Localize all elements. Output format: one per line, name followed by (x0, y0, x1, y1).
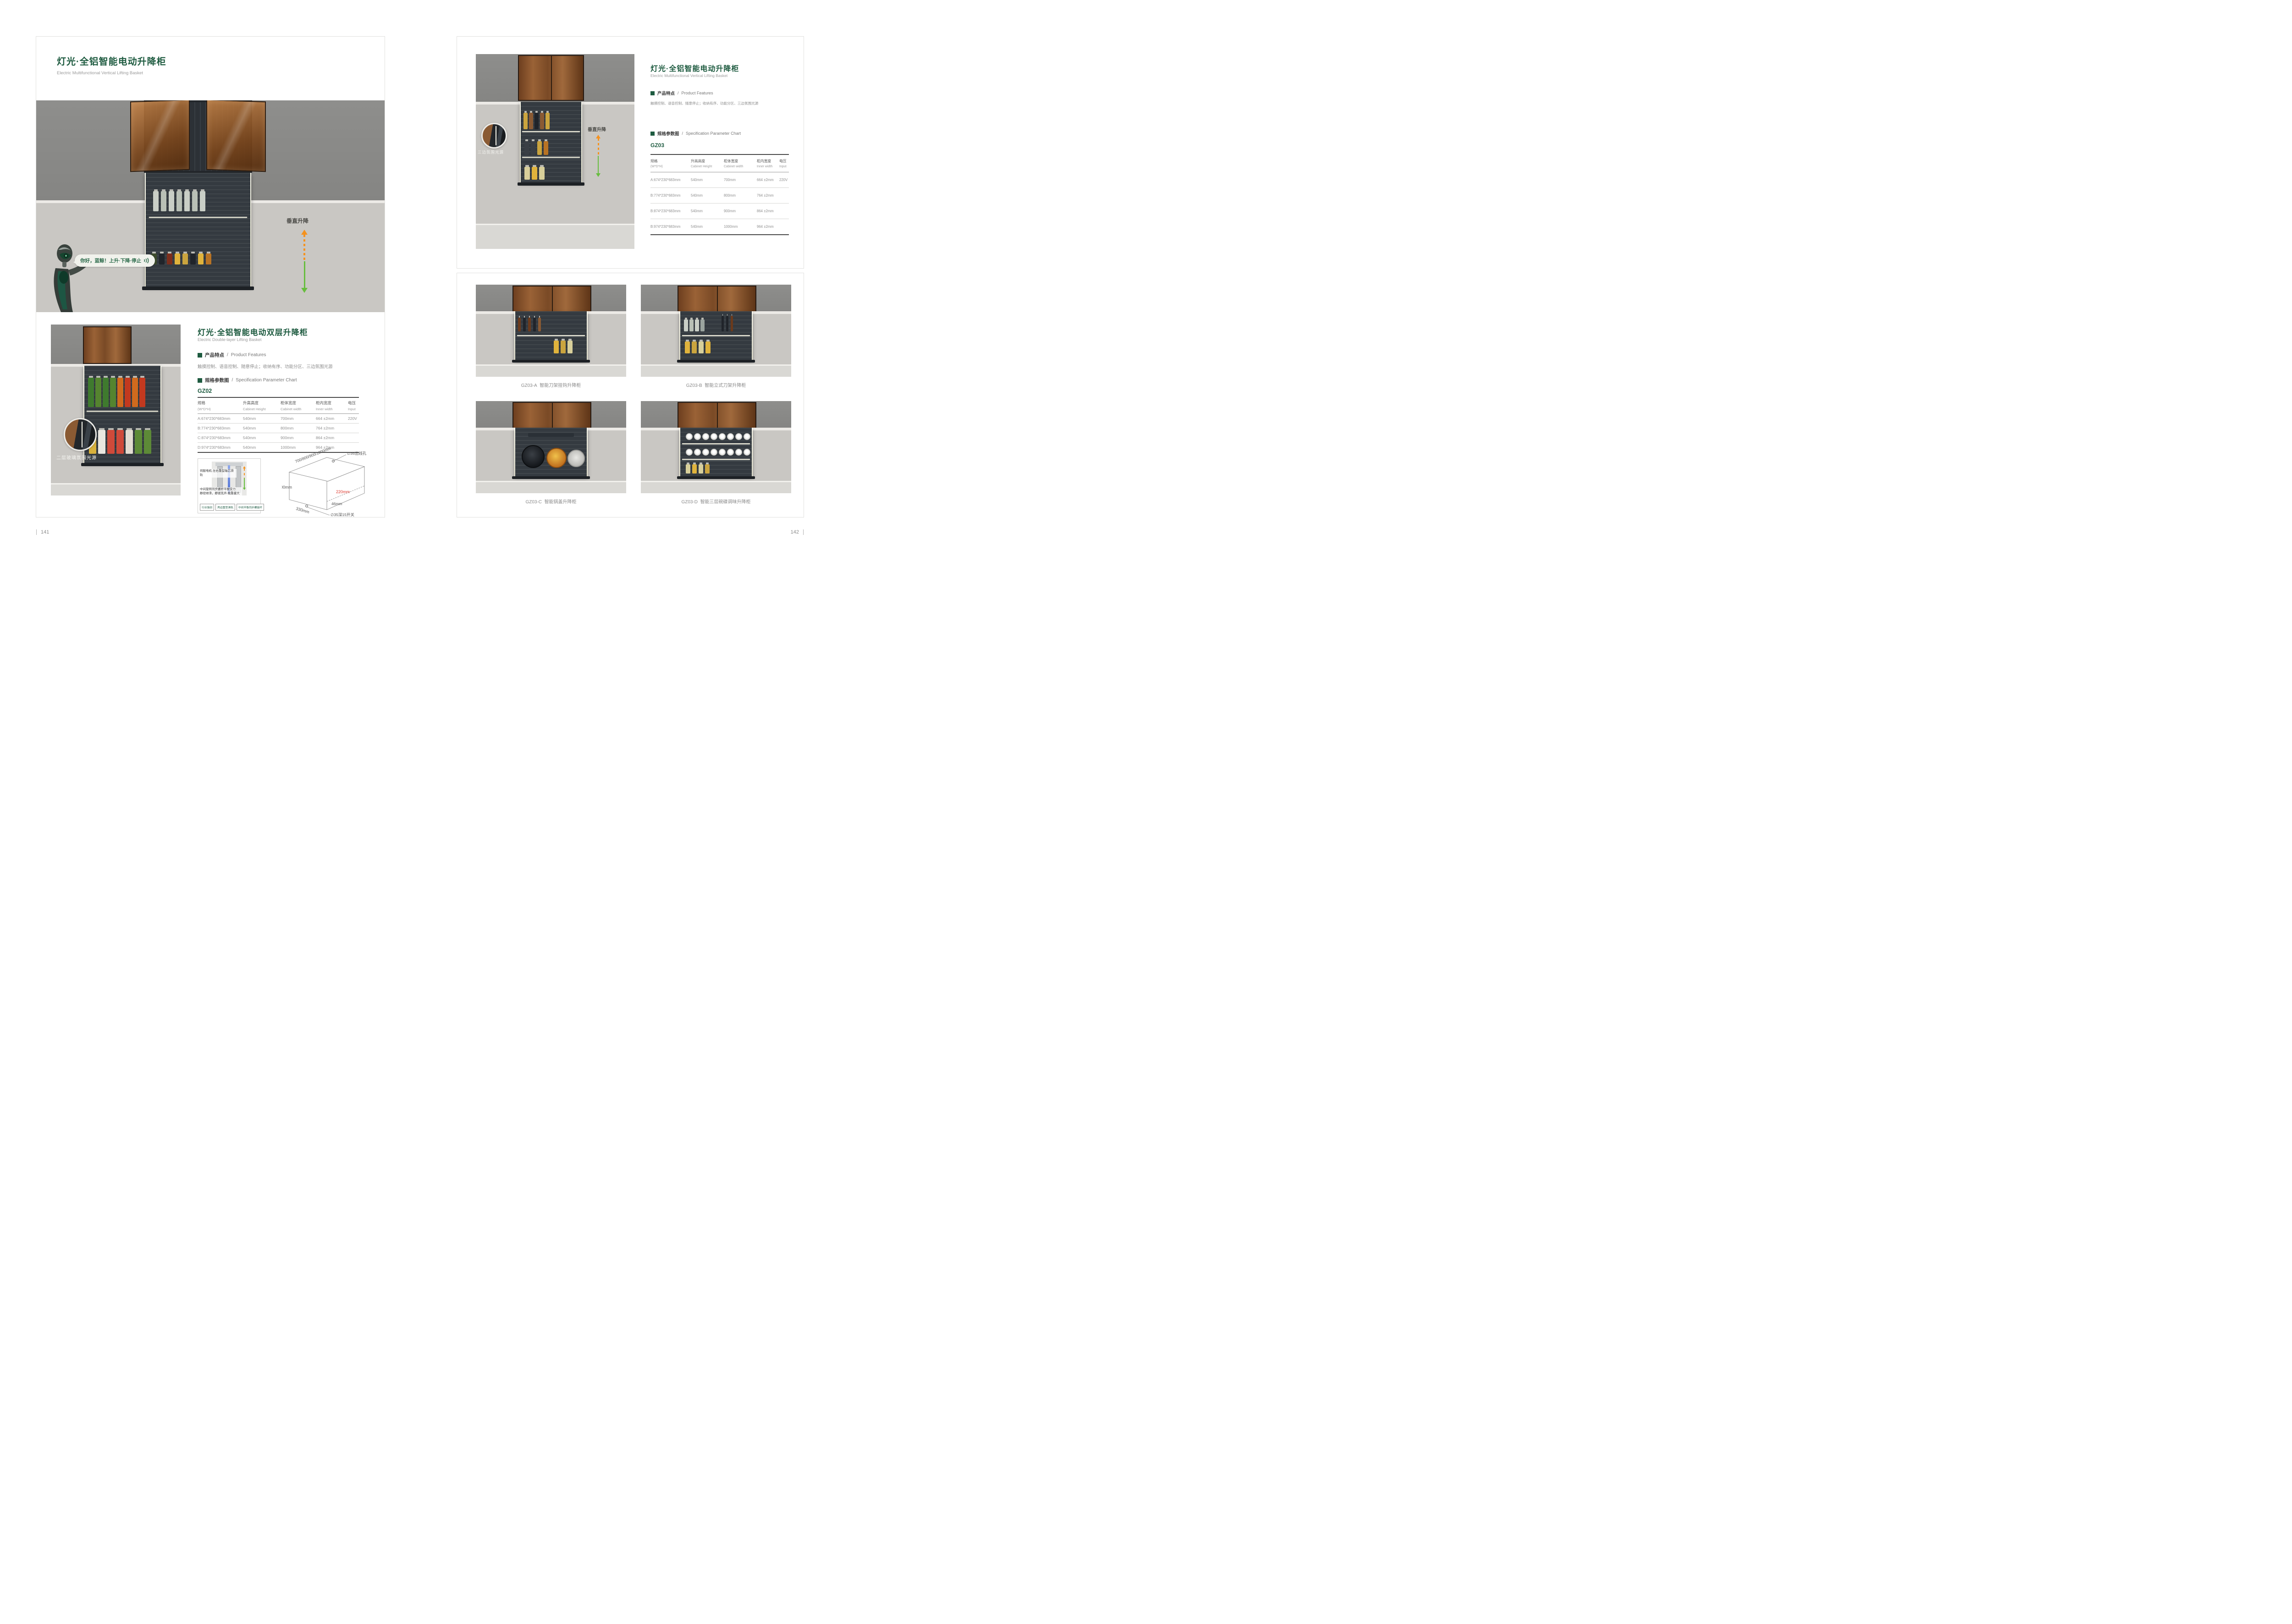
page-number-right: 142 (791, 529, 804, 535)
spec-heading-en: Specification Parameter Chart (686, 131, 741, 136)
features-heading-sep: / (227, 352, 228, 358)
green-square-icon (198, 353, 202, 358)
wood-cabinet (518, 55, 584, 101)
cell: 664 ±2mm (316, 416, 348, 421)
features-heading-zh: 产品特点 (657, 90, 675, 96)
utensil-row (523, 113, 550, 129)
jar-row (524, 167, 545, 180)
cell: 540mm (691, 225, 724, 229)
cell: B:974*230*683mm (650, 225, 691, 229)
cabinet-door-left (130, 100, 190, 172)
page-title: 灯光·全铝智能电动升降柜 (57, 54, 166, 67)
lifting-rack (145, 173, 251, 286)
glass-shelf (149, 217, 247, 218)
cell: D:974*230*683mm (198, 445, 243, 450)
table-row: A:674*230*683mm540mm700mm664 ±2mm220V (650, 172, 789, 187)
features-heading: 产品特点 / Product Features (198, 352, 266, 358)
col-header: 柜内宽度 (757, 159, 779, 164)
col-header-en: Input (779, 165, 789, 168)
carton-row-top (88, 378, 145, 407)
cell: 900mm (724, 209, 757, 213)
lifting-cabinet (130, 100, 266, 297)
cell: 540mm (243, 445, 281, 450)
features-heading-zh: 产品特点 (205, 352, 224, 358)
cell: 540mm (691, 209, 724, 213)
spec-heading-en: Specification Parameter Chart (236, 378, 297, 383)
table-header-row: 规格(W*D*H) 升高高度Cabinet Height 柜体宽度Cabinet… (198, 398, 359, 413)
double-layer-photo: 二层玻璃氛围光源 (51, 325, 181, 495)
pot-lid (567, 450, 585, 467)
col-header-en: Inner width (316, 407, 348, 411)
table-row: B:774*230*683mm540mm800mm764 ±2mm (650, 187, 789, 203)
led-strip-icon (160, 366, 161, 463)
glass-shelf (87, 411, 158, 412)
cell: B:774*230*683mm (650, 193, 691, 198)
col-header: 规格 (650, 159, 691, 164)
mini-lift-arrows (243, 466, 246, 490)
lifting-rack (679, 311, 753, 360)
iso-dim-top: 700/800/900/1000mm (294, 447, 331, 464)
spec-heading-zh: 规格参数图 (205, 377, 229, 384)
detail-callout-circle (481, 123, 507, 149)
cell: B:774*230*683mm (198, 426, 243, 430)
diagram-note-1: 伺服电机·左右重型轴芯滑轨 (200, 469, 237, 478)
table-row: B:974*230*683mm540mm1000mm964 ±2mm (650, 219, 789, 234)
diagram-tag: 中间平衡同步螺旋杆 (237, 504, 264, 511)
diagram-note-2a: 中间旋转同步螺杆平衡受力 (200, 487, 242, 491)
cell: 540mm (691, 193, 724, 198)
product-code: GZ03-C (525, 500, 542, 505)
voice-bubble: 你好，蓝鲸！上升·下降·停止 (75, 254, 155, 267)
jar-row-top (153, 191, 205, 211)
green-square-icon (198, 378, 202, 383)
col-header: 规格 (198, 400, 243, 406)
lift-direction-label: 垂直升降 (286, 217, 309, 225)
section-subtitle: Electric Double-layer Lifting Basket (198, 337, 262, 342)
detail-callout-label: 三边氛围光源 (478, 149, 504, 155)
cell: A:674*230*683mm (198, 416, 243, 421)
product-code: GZ03-A (521, 383, 537, 388)
col-header: 柜内宽度 (316, 400, 348, 406)
col-header: 电压 (348, 400, 359, 406)
right-page-bottom: GZ03-A 智能刀架挂钩升降柜 (457, 273, 804, 517)
col-header: 柜体宽度 (281, 400, 316, 406)
diagram-tags: 行业独创 两边重型滑轨 中间平衡同步螺旋杆 (200, 504, 259, 511)
features-heading-en: Product Features (231, 352, 266, 358)
cell: B:874*230*683mm (650, 209, 691, 213)
rack-base (142, 286, 254, 290)
spec-heading-sep: / (232, 378, 233, 383)
col-header-en: Inner width (757, 165, 779, 168)
lift-direction-arrows (596, 135, 601, 177)
countertop (476, 224, 634, 249)
pan-gold (546, 448, 567, 468)
model-code: GZ02 (198, 388, 212, 394)
page-number-left: 141 (36, 529, 49, 535)
mechanism-diagram: 伺服电机·左右重型轴芯滑轨 中间旋转同步螺杆平衡受力 静密顺滑，静谧无声·载重量… (198, 458, 261, 513)
features-heading-en: Product Features (682, 91, 713, 95)
solid-line (304, 261, 305, 288)
spec-heading: 规格参数图 / Specification Parameter Chart (650, 130, 741, 137)
product-name: 智能刀架挂钩升降柜 (540, 383, 581, 388)
lifting-rack (514, 311, 588, 360)
iso-dim-height: 700mm (282, 485, 292, 490)
led-strip-icon (250, 173, 251, 286)
spec-table-gz03: 规格(W*D*H) 升高高度Cabinet Height 柜体宽度Cabinet… (650, 154, 789, 235)
cell: 700mm (281, 416, 316, 421)
left-page: 灯光·全铝智能电动升降柜 Electric Multifunctional Ve… (36, 36, 385, 517)
col-header: 柜体宽度 (724, 159, 757, 164)
spec-heading-zh: 规格参数图 (657, 130, 679, 137)
table-row: C:874*230*683mm540mm900mm864 ±2mm (198, 433, 359, 442)
spec-heading-sep: / (682, 131, 683, 136)
left-page-header: 灯光·全铝智能电动升降柜 Electric Multifunctional Ve… (57, 54, 166, 76)
product-photo-gz03b (641, 285, 791, 377)
cell: 540mm (691, 178, 724, 182)
col-header-en: Cabinet width (281, 407, 316, 411)
cell: 540mm (243, 416, 281, 421)
rack-base (81, 463, 164, 466)
col-header-en: (W*D*H) (198, 407, 243, 411)
cell: 220V (348, 416, 359, 421)
features-text: 触摸控制、语音控制、随意停止；收纳有序、功能分区、三边氛围光源 (198, 363, 368, 369)
product-photo-gz03c (476, 401, 626, 493)
cell: A:674*230*683mm (650, 178, 691, 182)
features-heading-sep: / (678, 91, 679, 95)
led-strip-icon (145, 173, 146, 286)
col-header-en: Input (348, 407, 359, 411)
spice-row (524, 141, 548, 155)
cell: 800mm (281, 426, 316, 430)
pan (522, 445, 545, 468)
section-title: 灯光·全铝智能电动双层升降柜 (198, 326, 308, 337)
col-header-en: (W*D*H) (650, 165, 691, 168)
cell: 864 ±2mm (316, 435, 348, 440)
detail-callout-label: 二层玻璃氛围光源 (56, 454, 97, 461)
col-header: 升高高度 (691, 159, 724, 164)
lifting-rack (679, 428, 753, 476)
sound-wave-icon (143, 258, 149, 264)
diagram-note-2: 中间旋转同步螺杆平衡受力 静密顺滑，静谧无声·载重量大 (200, 487, 242, 496)
hanging-bar (528, 433, 574, 437)
page-title: 灯光·全铝智能电动升降柜 (650, 62, 739, 73)
lift-direction-arrows (301, 230, 308, 293)
cell: 964 ±2mm (757, 225, 779, 229)
cell: 800mm (724, 193, 757, 198)
product-name: 智能锅盖升降柜 (545, 500, 577, 505)
arrow-up-icon (301, 230, 308, 235)
cell: 540mm (243, 426, 281, 430)
lift-direction-label: 垂直升降 (588, 126, 606, 132)
cabinet-door-right (206, 100, 266, 172)
cell: 764 ±2mm (757, 193, 779, 198)
col-header-en: Cabinet width (724, 165, 757, 168)
product-photo-gz03a (476, 285, 626, 377)
table-row: A:674*230*683mm540mm700mm664 ±2mm220V (198, 413, 359, 423)
product-caption-gz03c: GZ03-C 智能锅盖升降柜 (476, 498, 626, 505)
right-page-top: 三边氛围光源 垂直升降 灯光·全铝智能电动升降柜 Electric Multif… (457, 36, 804, 269)
features-heading: 产品特点 / Product Features (650, 90, 713, 96)
col-header: 电压 (779, 159, 789, 164)
product-name: 智能立式刀架升降柜 (705, 383, 746, 388)
cell: 700mm (724, 178, 757, 182)
product-caption-gz03a: GZ03-A 智能刀架挂钩升降柜 (476, 381, 626, 388)
product-code: GZ03-D (681, 500, 698, 505)
cell: 540mm (243, 435, 281, 440)
cell: 1000mm (724, 225, 757, 229)
diagram-tag: 行业独创 (200, 504, 214, 511)
dashed-line (303, 235, 305, 261)
iso-dimension-drawing: 700/800/900/1000mm 700mm 330mm 220mm 46m… (282, 447, 372, 517)
spec-table-gz02: 规格(W*D*H) 升高高度Cabinet Height 柜体宽度Cabinet… (198, 397, 359, 453)
detail-callout-circle (64, 418, 97, 451)
product-name: 智能三层碗碟调味升降柜 (700, 500, 751, 505)
countertop (51, 483, 181, 495)
col-header-en: Cabinet Height (691, 165, 724, 168)
iso-dim-offset: 46mm (331, 501, 342, 506)
table-row: B:774*230*683mm540mm800mm764 ±2mm (198, 423, 359, 433)
product-caption-gz03d: GZ03-D 智能三层碗碟调味升降柜 (641, 498, 791, 505)
cell: 664 ±2mm (757, 178, 779, 182)
wood-cabinet (83, 326, 132, 364)
diagram-note-2b: 静密顺滑，静谧无声·载重量大 (200, 491, 242, 495)
product-code: GZ03-B (686, 383, 702, 388)
voice-bubble-text: 你好，蓝鲸！上升·下降·停止 (80, 257, 141, 264)
cell: C:874*230*683mm (198, 435, 243, 440)
features-text: 触摸控制、语音控制、随意停止；收纳有序、功能分区、三边氛围光源 (650, 101, 788, 106)
table-row: B:874*230*683mm540mm900mm864 ±2mm (650, 203, 789, 219)
carton-row-bottom (89, 430, 151, 454)
arrow-down-icon (301, 288, 308, 293)
hero-photo: 你好，蓝鲸！上升·下降·停止 垂直升降 (36, 100, 385, 312)
kitchen-photo: 三边氛围光源 垂直升降 (476, 54, 634, 249)
diagram-tag: 两边重型滑轨 (215, 504, 235, 511)
iso-hole-label: ∅35出线孔 (347, 451, 367, 456)
iso-switch-label: ∅35深15开关 (331, 512, 354, 517)
spec-heading: 规格参数图 / Specification Parameter Chart (198, 377, 297, 384)
product-photo-gz03d (641, 401, 791, 493)
robot-mascot (47, 243, 102, 312)
page-subtitle: Electric Multifunctional Vertical Liftin… (57, 71, 166, 76)
iso-dim-inner: 220mm (336, 490, 350, 494)
col-header: 升高高度 (243, 400, 281, 406)
model-code: GZ03 (650, 142, 664, 149)
col-header-en: Cabinet Height (243, 407, 281, 411)
page-subtitle: Electric Multifunctional Vertical Liftin… (650, 73, 727, 78)
lifting-rack (83, 366, 161, 463)
cell: 864 ±2mm (757, 209, 779, 213)
lifting-rack (520, 102, 582, 182)
lifting-rack (514, 428, 588, 476)
cell: 764 ±2mm (316, 426, 348, 430)
jar-row-bottom (151, 253, 211, 264)
cell: 220V (779, 178, 789, 182)
cell: 900mm (281, 435, 316, 440)
table-header-row: 规格(W*D*H) 升高高度Cabinet Height 柜体宽度Cabinet… (650, 155, 789, 172)
product-caption-gz03b: GZ03-B 智能立式刀架升降柜 (641, 381, 791, 388)
